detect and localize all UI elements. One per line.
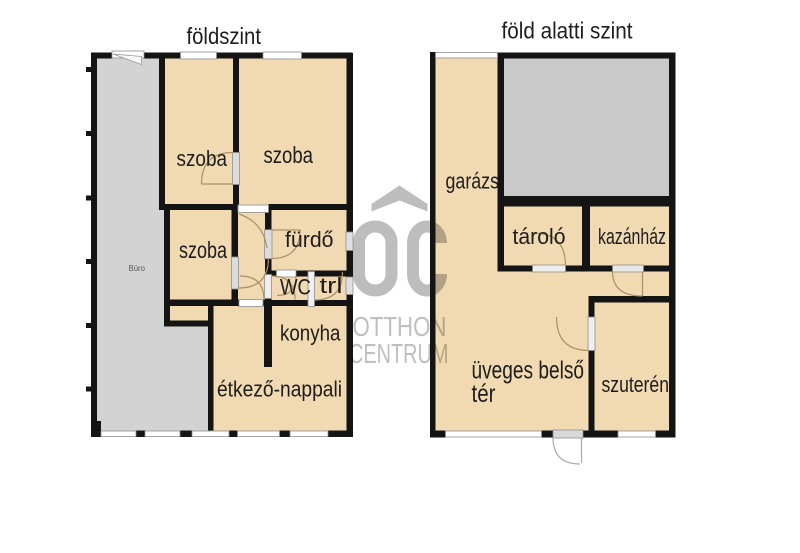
svg-text:földszint: földszint	[187, 23, 262, 49]
svg-text:föld alatti szint: föld alatti szint	[502, 18, 633, 44]
svg-text:konyha: konyha	[280, 321, 341, 346]
svg-text:trl: trl	[320, 273, 343, 298]
svg-text:szoba: szoba	[179, 237, 227, 263]
svg-text:szoba: szoba	[264, 142, 314, 168]
svg-text:Büro: Büro	[129, 263, 146, 273]
svg-text:szoba: szoba	[177, 146, 228, 171]
svg-text:WC: WC	[280, 275, 311, 300]
svg-text:tér: tér	[472, 380, 496, 408]
svg-text:garázs: garázs	[446, 169, 500, 194]
svg-text:kazánház: kazánház	[598, 224, 666, 249]
svg-text:szuterén: szuterén	[602, 372, 670, 397]
svg-text:tároló: tároló	[513, 224, 566, 249]
svg-text:fürdő: fürdő	[285, 227, 334, 252]
svg-text:étkező-nappali: étkező-nappali	[217, 377, 342, 402]
